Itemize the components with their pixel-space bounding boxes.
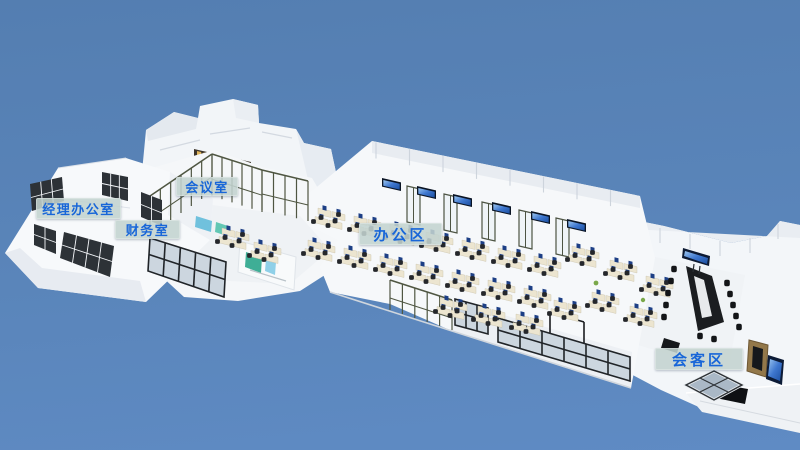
room-label-text: 办公区 bbox=[373, 224, 427, 245]
office-3d-viewport: 经理办公室 财务室 会议室 办公区 会客区 bbox=[0, 0, 800, 450]
room-label-manager-office[interactable]: 经理办公室 bbox=[36, 198, 121, 219]
room-label-text: 财务室 bbox=[126, 220, 170, 239]
reception-doorway bbox=[747, 340, 768, 377]
room-label-office-area[interactable]: 办公区 bbox=[359, 223, 442, 245]
room-label-finance-room[interactable]: 财务室 bbox=[115, 220, 180, 239]
room-label-text: 会议室 bbox=[185, 177, 229, 196]
room-label-meeting-room[interactable]: 会议室 bbox=[176, 177, 238, 196]
room-label-text: 会客区 bbox=[672, 349, 726, 370]
room-label-reception-area[interactable]: 会客区 bbox=[655, 348, 743, 370]
room-label-text: 经理办公室 bbox=[42, 199, 115, 218]
